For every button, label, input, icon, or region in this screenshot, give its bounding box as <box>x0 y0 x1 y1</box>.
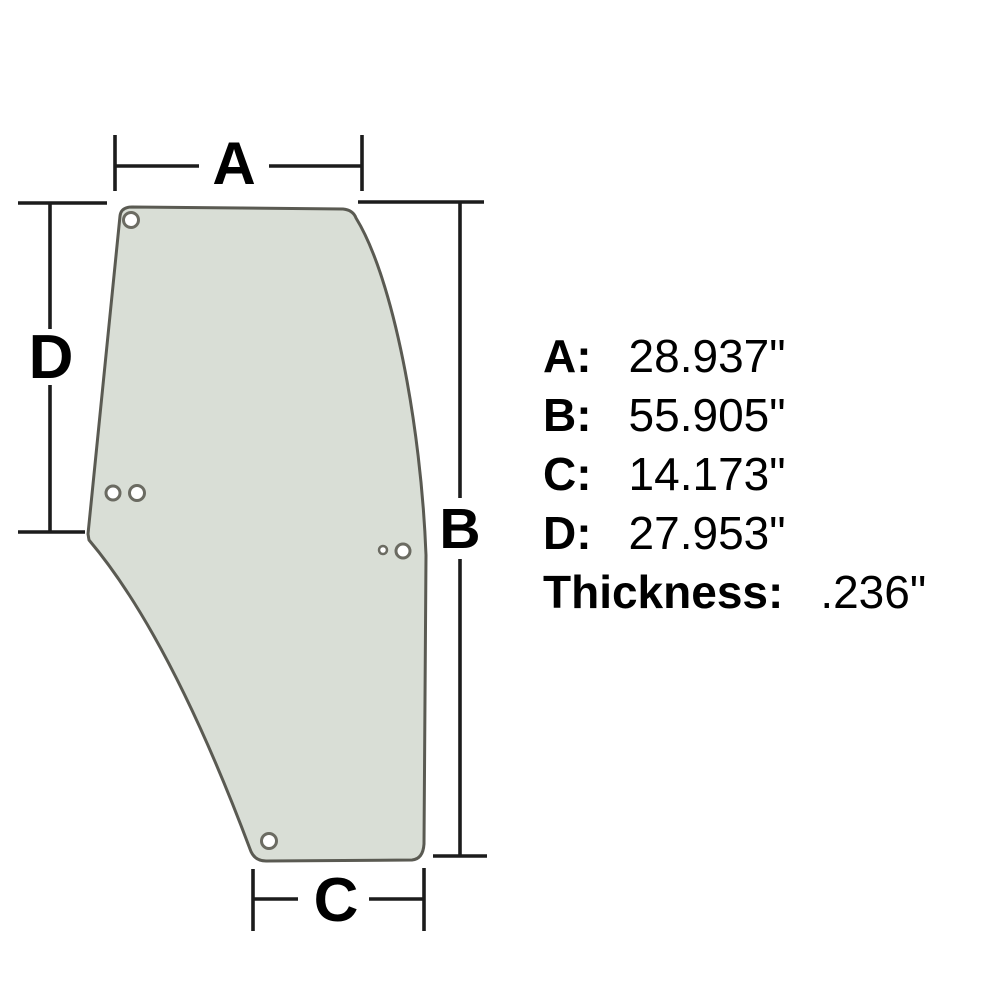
dimension-d: D <box>18 203 85 532</box>
extension-lines <box>18 202 484 203</box>
spec-value-c: 14.173" <box>629 445 786 504</box>
dimension-letter-c: C <box>314 866 359 935</box>
spec-value-d: 27.953" <box>629 504 786 563</box>
diagram-canvas: A D B C A: 28.937" <box>0 0 1000 1000</box>
spec-label-c: C: <box>543 445 592 504</box>
spec-value-thickness: .236" <box>820 563 926 622</box>
mounting-hole-mid-right-small <box>379 546 387 554</box>
mounting-hole-mid-left-1 <box>106 486 120 500</box>
dimension-letter-a: A <box>212 130 255 197</box>
spec-row-c: C: 14.173" <box>543 445 926 504</box>
spec-row-d: D: 27.953" <box>543 504 926 563</box>
spec-label-thickness: Thickness: <box>543 563 783 622</box>
glass-panel <box>88 207 426 861</box>
spec-row-a: A: 28.937" <box>543 327 926 386</box>
dimension-letter-d: D <box>29 323 74 392</box>
mounting-hole-bottom-left <box>262 834 277 849</box>
specs-list: A: 28.937" B: 55.905" C: 14.173" D: 27.9… <box>543 327 926 622</box>
spec-label-b: B: <box>543 386 592 445</box>
dimension-letter-b: B <box>439 497 480 561</box>
dimension-b: B <box>433 202 487 856</box>
glass-panel-outline <box>88 207 426 861</box>
mounting-hole-top-left <box>124 213 139 228</box>
spec-row-b: B: 55.905" <box>543 386 926 445</box>
dimension-a: A <box>115 130 362 197</box>
spec-label-d: D: <box>543 504 592 563</box>
spec-label-a: A: <box>543 327 592 386</box>
spec-value-a: 28.937" <box>629 327 786 386</box>
dimension-c: C <box>253 866 424 935</box>
mounting-hole-mid-right <box>396 544 410 558</box>
spec-row-thickness: Thickness: .236" <box>543 563 926 622</box>
spec-value-b: 55.905" <box>629 386 786 445</box>
mounting-hole-mid-left-2 <box>130 486 145 501</box>
